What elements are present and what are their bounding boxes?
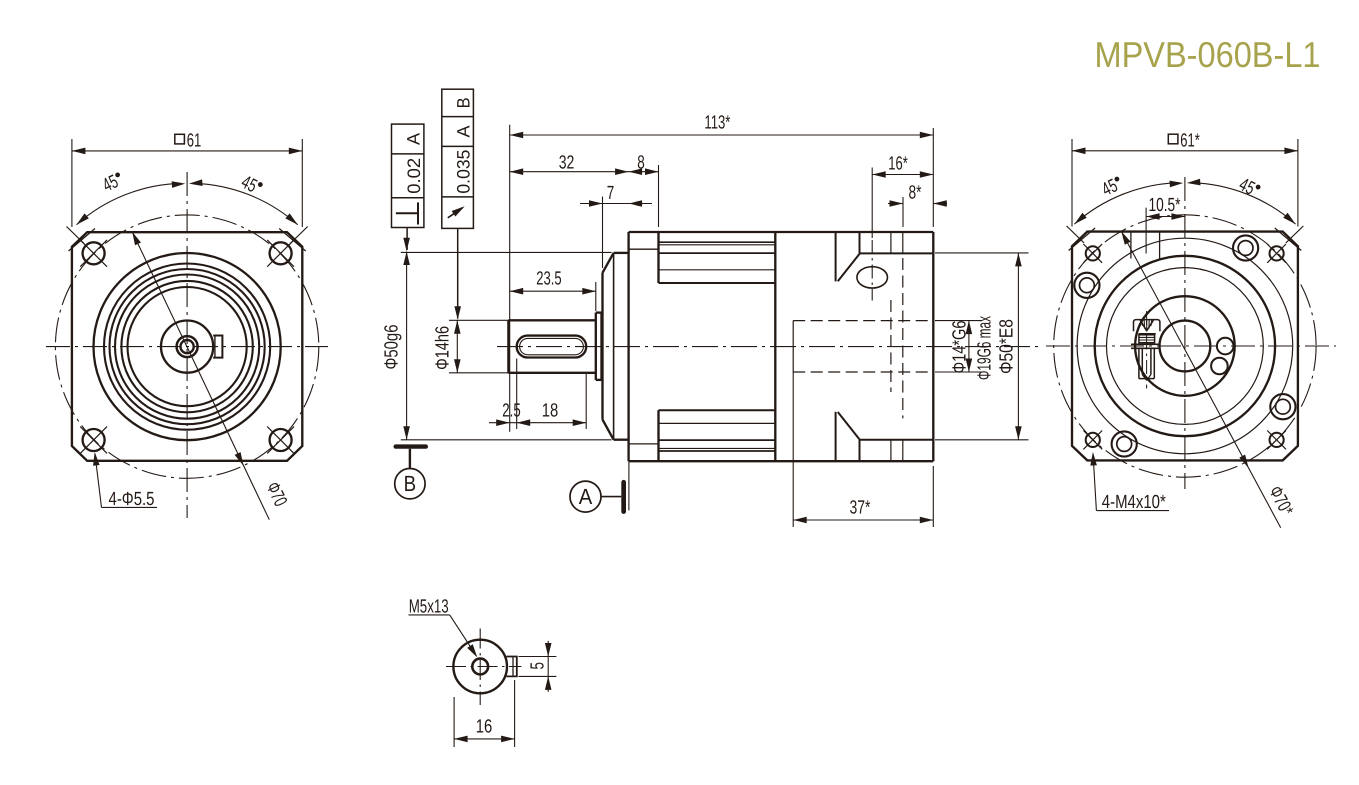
svg-text:61: 61 xyxy=(187,131,202,152)
svg-text:10.5*: 10.5* xyxy=(1149,195,1181,216)
svg-text:4-M4x10*: 4-M4x10* xyxy=(1102,492,1166,513)
svg-text:32: 32 xyxy=(559,153,575,174)
svg-text:Φ50*E8: Φ50*E8 xyxy=(997,319,1018,374)
svg-text:A: A xyxy=(579,484,593,509)
svg-text:Φ50g6: Φ50g6 xyxy=(382,325,403,370)
svg-text:45: 45 xyxy=(238,172,260,197)
svg-text:A: A xyxy=(453,126,473,138)
svg-text:2.5: 2.5 xyxy=(502,401,520,422)
svg-text:A: A xyxy=(404,133,424,145)
svg-text:8*: 8* xyxy=(909,182,922,203)
svg-text:MPVB-060B-L1: MPVB-060B-L1 xyxy=(1095,34,1321,75)
svg-text:18: 18 xyxy=(542,401,559,422)
svg-text:7: 7 xyxy=(607,183,615,204)
svg-text:8: 8 xyxy=(637,153,645,174)
svg-text:Φ14*G6: Φ14*G6 xyxy=(950,321,971,374)
svg-text:B: B xyxy=(453,97,473,108)
svg-text:16*: 16* xyxy=(888,153,908,174)
svg-text:23.5: 23.5 xyxy=(536,269,561,290)
svg-text:Φ70: Φ70 xyxy=(261,479,290,510)
svg-text:B: B xyxy=(404,471,417,496)
svg-text:61*: 61* xyxy=(1180,131,1200,152)
svg-text:16: 16 xyxy=(476,717,493,738)
svg-text:45: 45 xyxy=(1236,174,1258,199)
svg-text:113*: 113* xyxy=(704,113,730,134)
svg-text:Φ19G6 max: Φ19G6 max xyxy=(974,316,995,380)
svg-text:5: 5 xyxy=(528,662,549,670)
svg-text:Φ14h6: Φ14h6 xyxy=(433,326,454,370)
svg-text:0.02: 0.02 xyxy=(404,158,424,194)
svg-text:4-Φ5.5: 4-Φ5.5 xyxy=(109,489,155,510)
svg-text:Φ70*: Φ70* xyxy=(1264,483,1297,520)
svg-text:37*: 37* xyxy=(850,498,871,519)
svg-text:0.035: 0.035 xyxy=(454,150,474,194)
svg-text:M5x13: M5x13 xyxy=(409,596,449,617)
